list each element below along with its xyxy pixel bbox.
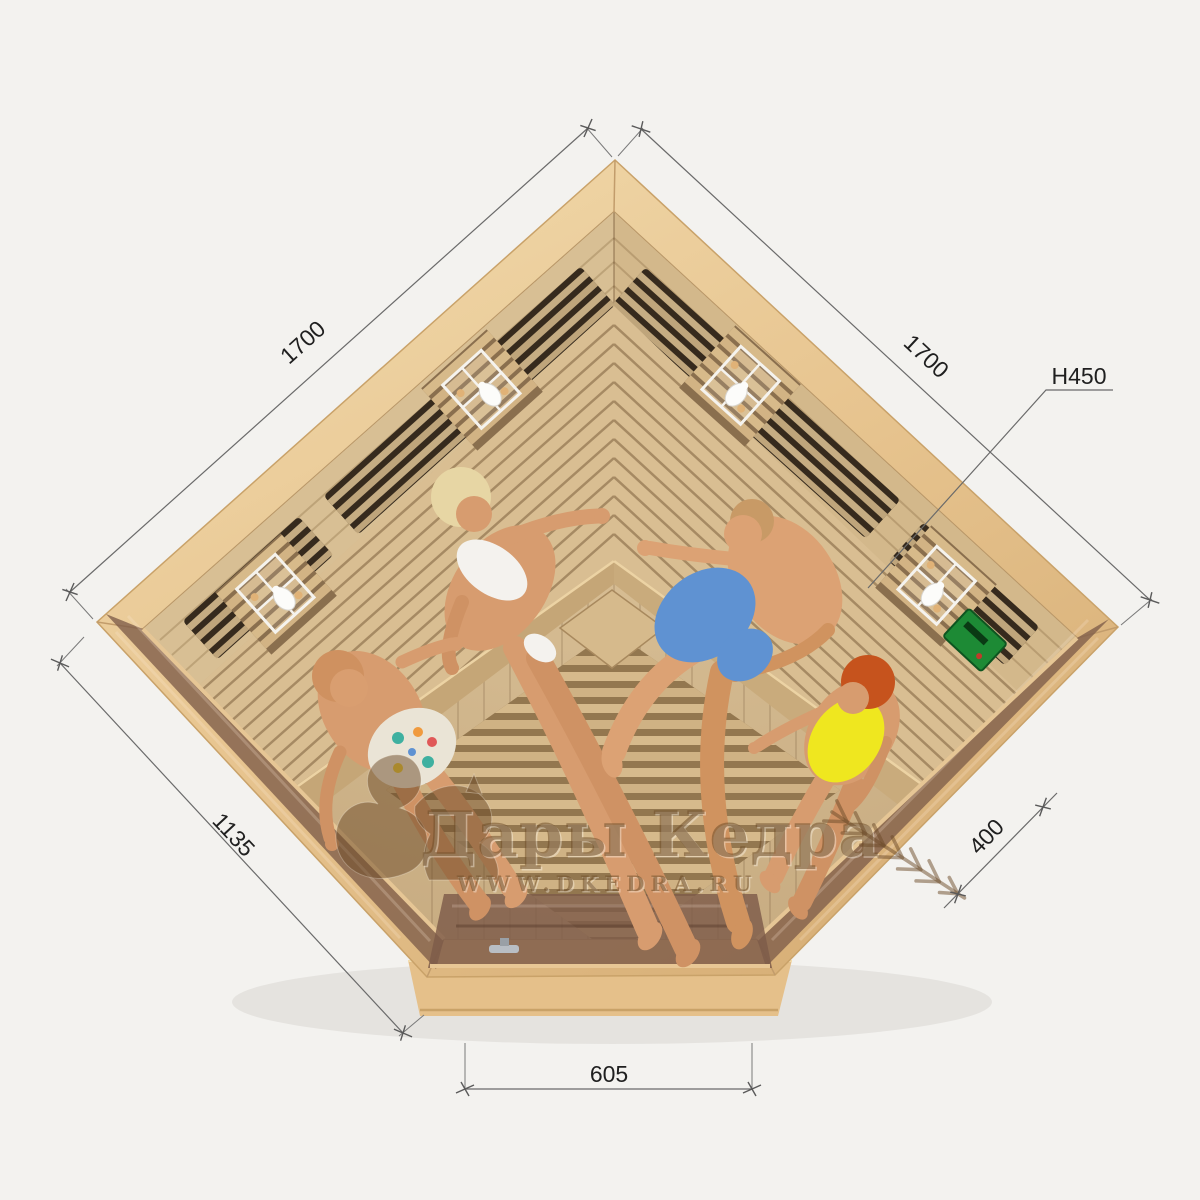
dim-bottom-right: 400 — [944, 793, 1057, 908]
dim-label-door: 605 — [590, 1061, 628, 1087]
dim-label-top-left: 1700 — [275, 315, 330, 369]
dim-label-bottom-left: 1135 — [207, 808, 260, 862]
dim-door-width: 605 — [456, 1043, 761, 1096]
product-diagram-canvas: Дары Кедра Дары Кедра WWW.DKEDRA.RU WWW.… — [0, 0, 1200, 1200]
dim-label-height: H450 — [1052, 363, 1107, 389]
watermark-brand-text: Дары Кедра — [420, 797, 880, 871]
watermark-url-text: WWW.DKEDRA.RU — [456, 871, 757, 896]
dim-label-bottom-right: 400 — [964, 814, 1009, 860]
sauna-illustration: Дары Кедра Дары Кедра WWW.DKEDRA.RU WWW.… — [0, 0, 1200, 1200]
